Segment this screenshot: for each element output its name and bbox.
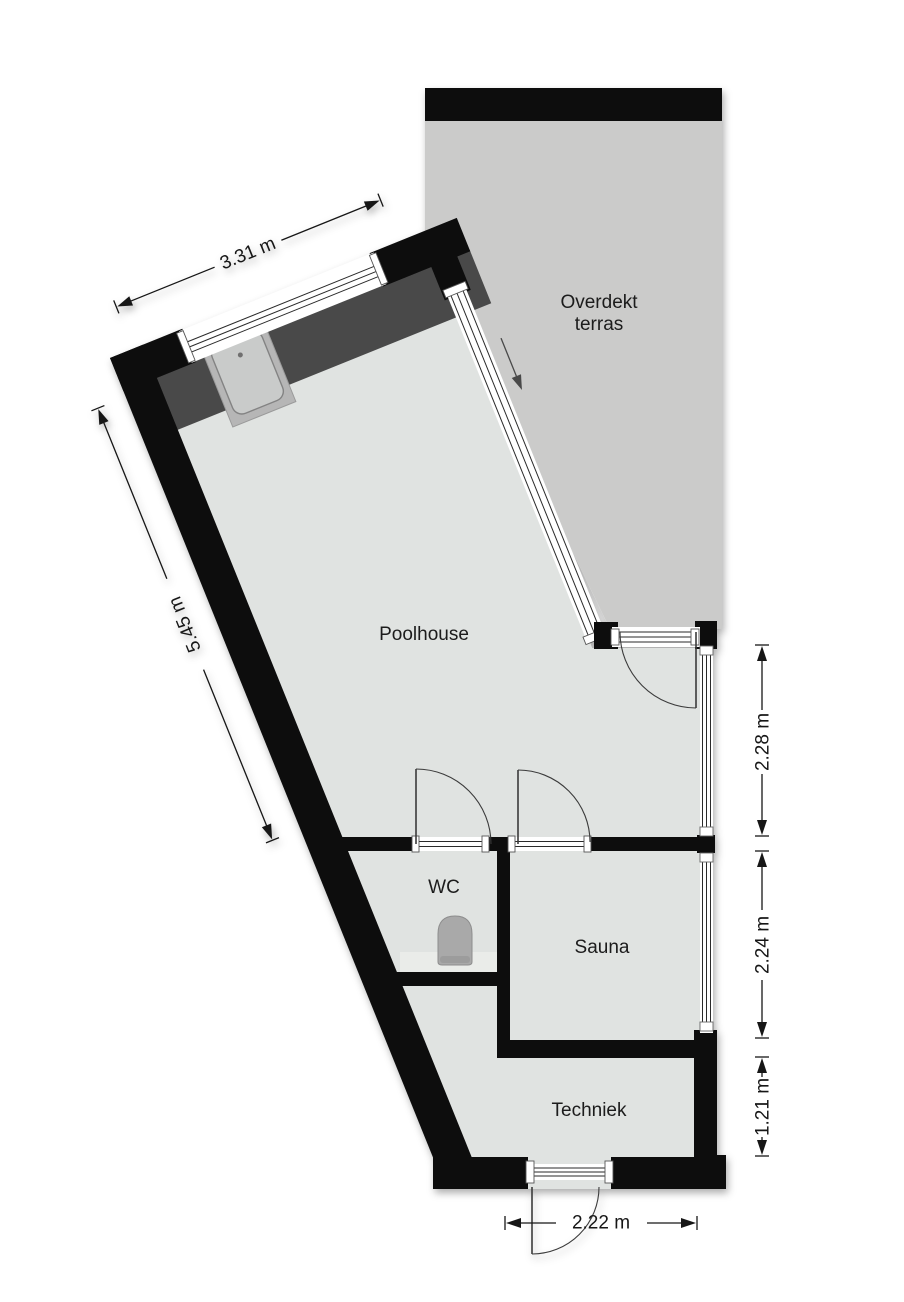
- terrace-top-wall: [425, 88, 722, 121]
- sauna-label: Sauna: [575, 937, 630, 958]
- techniek-label: Techniek: [552, 1100, 627, 1121]
- techniek-bottom-wall-right: [611, 1157, 726, 1189]
- techniek-door-opening: [526, 1157, 613, 1189]
- terrace-door-frame: [611, 627, 700, 647]
- wc-top-wall-left: [336, 837, 416, 851]
- toilet-icon: [438, 916, 472, 965]
- poolhouse-label: Poolhouse: [379, 624, 469, 645]
- sauna-bottom-wall: [497, 1040, 717, 1058]
- floorplan-page: 3.31 m 5.45 m: [0, 0, 904, 1302]
- wc-bottom-wall: [394, 972, 510, 986]
- dimension-label-right-upper: 2.28 m: [753, 713, 774, 771]
- dimension-label-right-lower: 1.21 m: [753, 1078, 774, 1136]
- terrace-label-line2: terras: [575, 314, 624, 335]
- sauna-door-threshold: [508, 836, 591, 852]
- dimension-label-right-middle: 2.24 m: [753, 916, 774, 974]
- floorplan-svg: 3.31 m 5.45 m: [0, 0, 904, 1302]
- wc-top-wall-right: [590, 837, 703, 851]
- glass-wall-upper: [700, 646, 713, 836]
- terrace-label-line1: Overdekt: [560, 292, 638, 313]
- wc-label: WC: [428, 877, 460, 898]
- wc-door-threshold: [412, 836, 489, 852]
- wc-sauna-divider-wall: [497, 845, 510, 1044]
- dimension-label-bottom: 2.22 m: [572, 1213, 630, 1234]
- glass-wall-lower: [700, 853, 713, 1033]
- techniek-right-wall: [694, 1056, 717, 1159]
- techniek-bottom-wall-left: [433, 1157, 528, 1189]
